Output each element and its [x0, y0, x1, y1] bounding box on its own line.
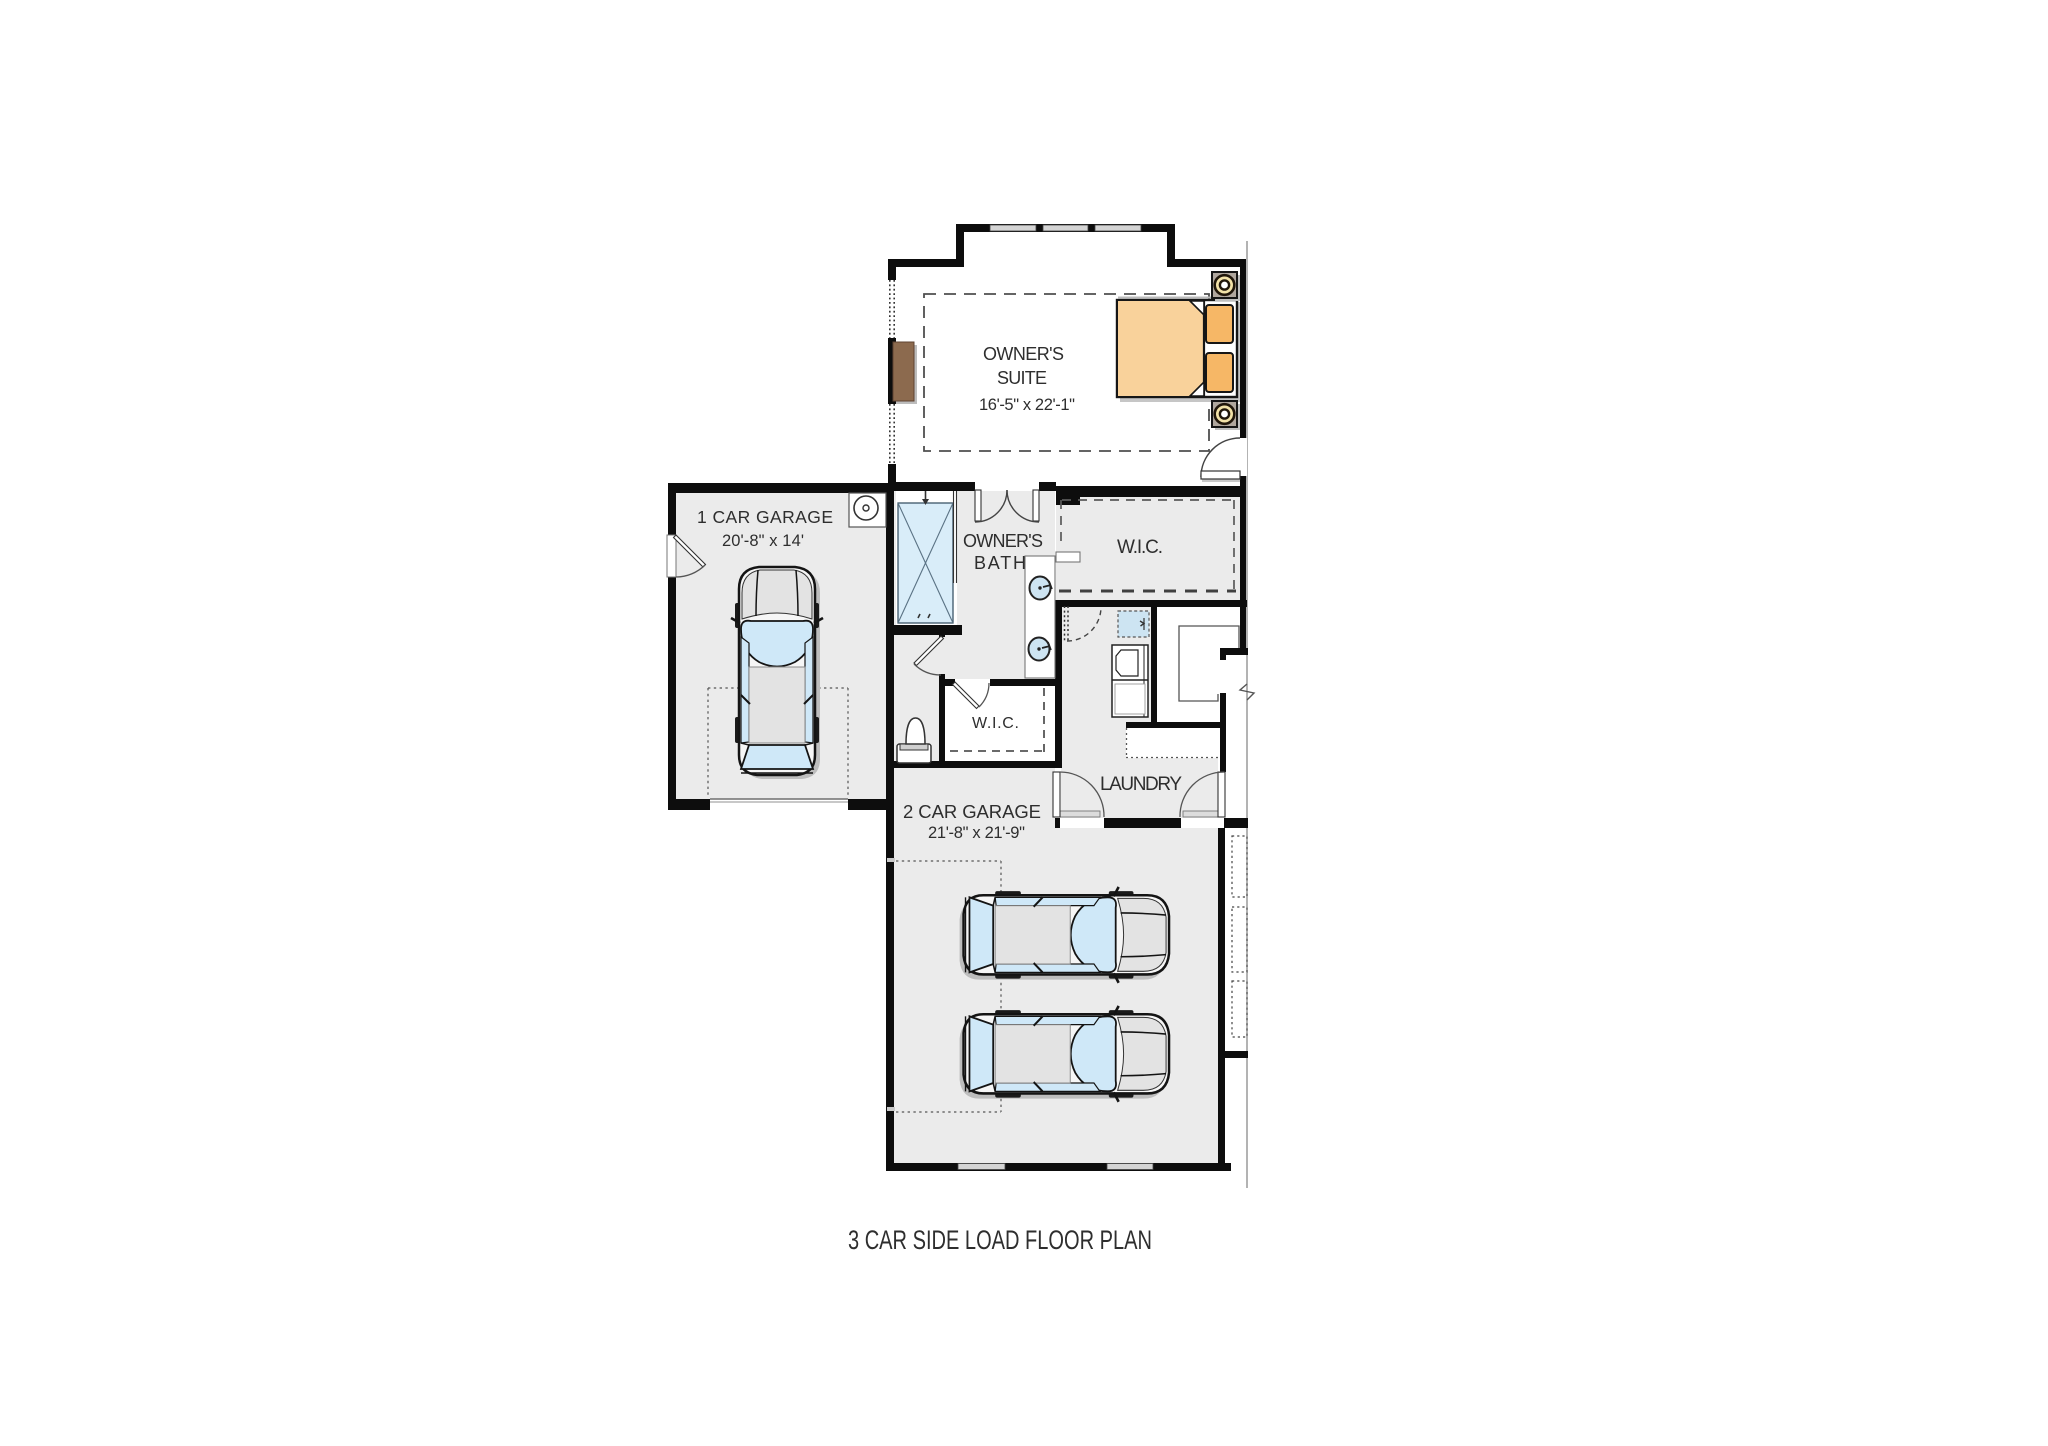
- svg-text:16'-5" x 22'-1": 16'-5" x 22'-1": [979, 396, 1075, 414]
- svg-text:21'-8" x 21'-9": 21'-8" x 21'-9": [928, 824, 1025, 842]
- svg-text:OWNER'S: OWNER'S: [963, 531, 1043, 551]
- svg-text:OWNER'S: OWNER'S: [983, 344, 1064, 364]
- svg-text:1 CAR GARAGE: 1 CAR GARAGE: [697, 507, 833, 527]
- svg-text:W.I.C.: W.I.C.: [1117, 537, 1163, 558]
- svg-text:3 CAR SIDE LOAD FLOOR PLAN: 3 CAR SIDE LOAD FLOOR PLAN: [848, 1225, 1152, 1255]
- svg-text:20'-8" x 14': 20'-8" x 14': [722, 532, 804, 550]
- svg-text:BATH: BATH: [974, 553, 1026, 573]
- svg-text:W.I.C.: W.I.C.: [972, 715, 1019, 732]
- svg-text:2 CAR GARAGE: 2 CAR GARAGE: [903, 801, 1041, 822]
- svg-text:LAUNDRY: LAUNDRY: [1100, 774, 1182, 795]
- svg-text:SUITE: SUITE: [997, 368, 1047, 388]
